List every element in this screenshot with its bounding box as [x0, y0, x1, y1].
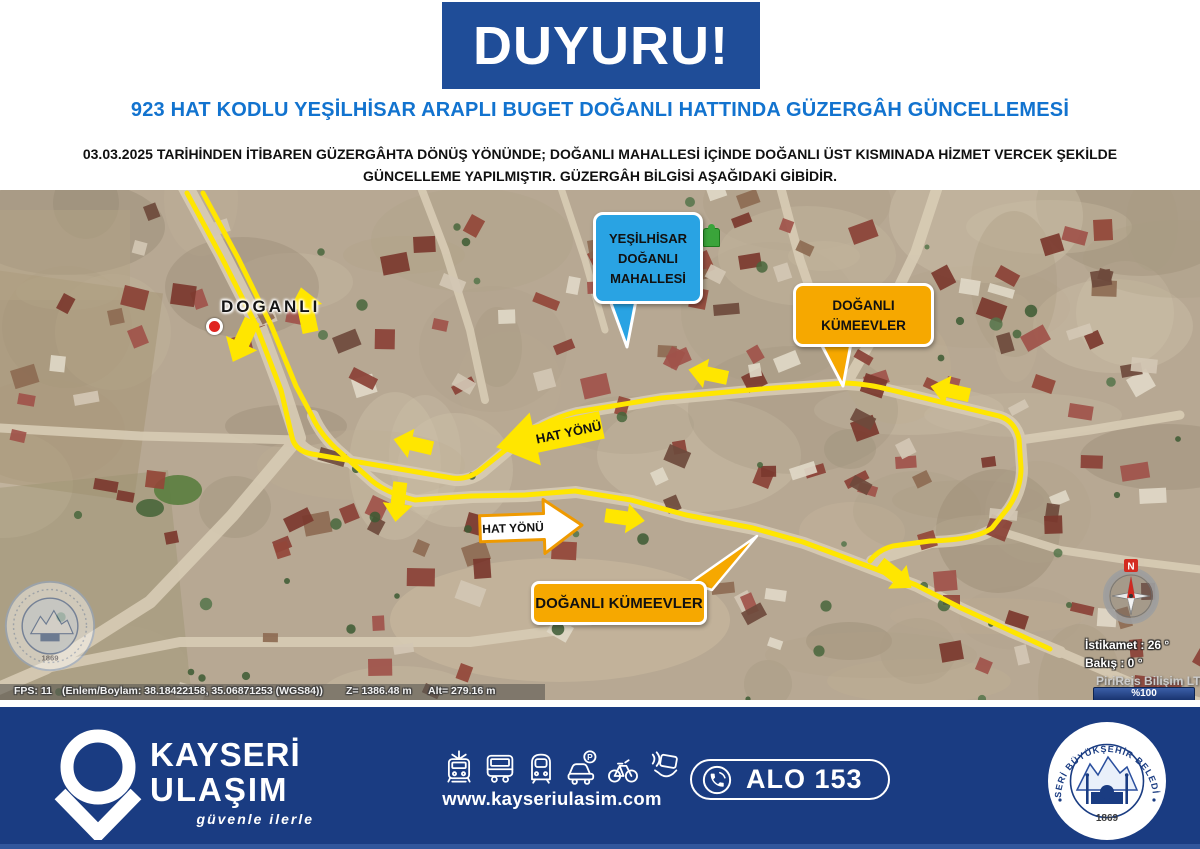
gis-zoom-level: %100: [1093, 687, 1195, 700]
car-parking-icon: P: [566, 749, 598, 785]
callout-line: KÜMEEVLER: [796, 318, 931, 333]
callout-label: DOĞANLI KÜMEEVLER: [535, 595, 703, 612]
callout-line: MAHALLESİ: [596, 271, 700, 286]
gis-z-value: Z= 1386.48 m: [346, 685, 412, 697]
phone-icon: [702, 765, 732, 795]
callout-line: YEŞİLHİSAR: [596, 231, 700, 246]
gis-view-angle: Bakış : 0 °: [1085, 656, 1143, 670]
municipality-seal: KAYSERİ BÜYÜKŞEHİR BELEDİYESİ 1869: [1046, 720, 1168, 842]
contactless-card-icon: [648, 749, 680, 785]
callout-doganli-kumeevler-bottom: DOĞANLI KÜMEEVLER: [531, 581, 707, 625]
compass-north-label: N: [1127, 562, 1134, 573]
callout-line: DOĞANLI: [596, 251, 700, 266]
compass: N: [1105, 559, 1157, 622]
footer: KAYSERİ ULAŞIM güvenle ilerle: [0, 707, 1200, 849]
announcement-body-line2: GÜNCELLEME YAPILMIŞTIR. GÜZERGÂH BİLGİSİ…: [0, 168, 1200, 184]
brand-slogan: güvenle ilerle: [150, 811, 314, 827]
callout-yesilhisar-doganli-mahallesi: YEŞİLHİSAR DOĞANLI MAHALLESİ: [593, 212, 703, 304]
callout-doganli-kumeevler-top: DOĞANLI KÜMEEVLER: [793, 283, 934, 347]
route-map: HAT YÖNÜ HAT YÖNÜ N: [0, 190, 1200, 700]
gis-altitude: Alt= 279.16 m: [428, 685, 495, 697]
gis-heading: İstikamet : 26 °: [1085, 638, 1169, 652]
direction-label-lower: HAT YÖNÜ: [482, 519, 544, 536]
kayseri-ulasim-pin-logo: [50, 722, 150, 840]
place-marker-dot: [206, 318, 223, 335]
banner-text: DUYURU!: [473, 15, 729, 77]
watermark-year: 1869: [41, 654, 58, 663]
seal-year: 1869: [1096, 813, 1119, 824]
gis-vendor: PiriReis Bilişim LTD: [1096, 674, 1200, 688]
place-label-doganli: DOGANLI: [221, 297, 320, 317]
parking-letter: P: [587, 752, 593, 762]
gis-fps: FPS: 11: [14, 685, 52, 697]
mosque-icon: [703, 228, 720, 247]
gis-coordinates: (Enlem/Boylam: 38.18422158, 35.06871253 …: [62, 685, 323, 697]
announcement-body-line1: 03.03.2025 TARİHİNDEN İTİBAREN GÜZERGÂHT…: [0, 146, 1200, 162]
metro-icon: [525, 749, 557, 785]
hotline-pill: ALO 153: [690, 759, 890, 800]
tram-icon: [443, 749, 475, 785]
announcement-title: 923 HAT KODLU YEŞİLHİSAR ARAPLI BUGET DO…: [0, 99, 1200, 122]
transport-icon-row: P: [443, 749, 680, 785]
footer-bottom-strip: [0, 844, 1200, 849]
municipality-watermark: 1869: [2, 578, 98, 674]
bicycle-icon: [607, 749, 639, 785]
duyuru-banner: DUYURU!: [442, 2, 760, 89]
announcement-poster: DUYURU! 923 HAT KODLU YEŞİLHİSAR ARAPLI …: [0, 0, 1200, 849]
brand-ulasim: ULAŞIM: [150, 771, 289, 809]
bus-icon: [484, 749, 516, 785]
callout-line: DOĞANLI: [796, 298, 931, 313]
hotline-number: ALO 153: [746, 764, 863, 795]
gis-status-bar: FPS: 11 (Enlem/Boylam: 38.18422158, 35.0…: [0, 684, 545, 700]
website-url: www.kayseriulasim.com: [436, 788, 668, 810]
brand-kayseri: KAYSERİ: [150, 736, 301, 774]
